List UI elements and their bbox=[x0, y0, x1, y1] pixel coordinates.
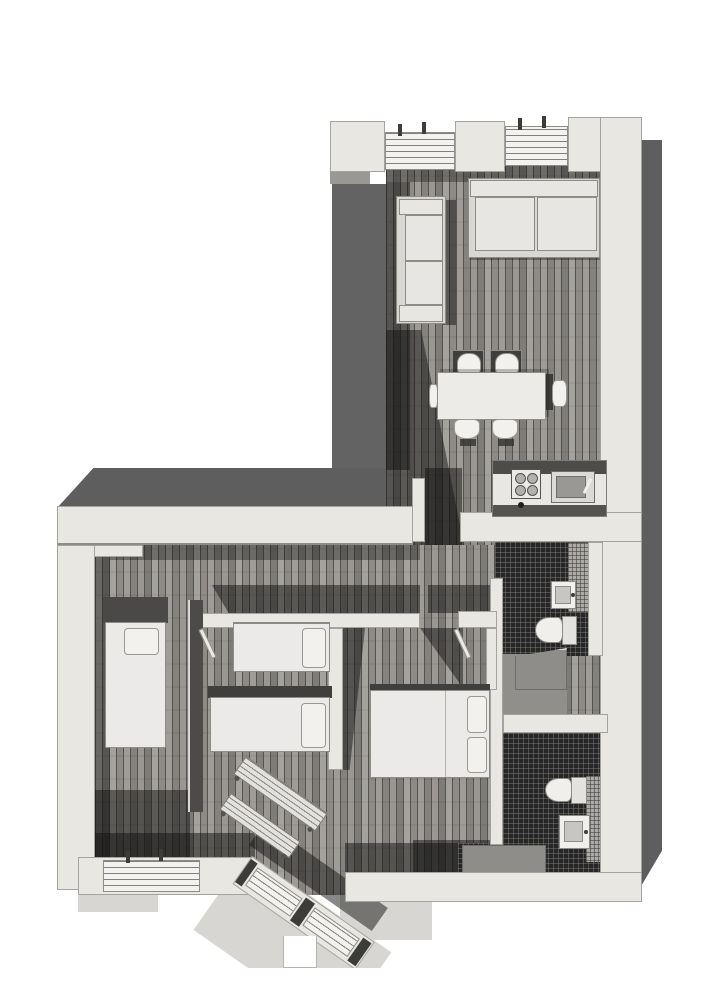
twin-bed-a bbox=[233, 622, 330, 672]
faucet-icon bbox=[584, 830, 588, 834]
basin-bowl bbox=[555, 586, 571, 604]
wall-bathroom-divider bbox=[503, 714, 608, 733]
chair-legs bbox=[460, 439, 476, 446]
bed-single bbox=[105, 622, 166, 748]
window-north-west bbox=[385, 132, 455, 170]
toilet-south bbox=[545, 777, 587, 804]
large-sofa bbox=[468, 178, 600, 258]
wall-divider-twin-master bbox=[328, 628, 343, 770]
burner-icon bbox=[527, 485, 538, 496]
window-handle-icon bbox=[542, 116, 546, 128]
wall-south-east bbox=[345, 872, 642, 902]
bed-pillow bbox=[467, 737, 487, 773]
wall-north-block-west bbox=[330, 121, 385, 172]
window-handle-icon bbox=[422, 122, 426, 134]
burner-icon bbox=[527, 473, 538, 484]
dining-chair-top bbox=[490, 350, 522, 374]
window-north-east bbox=[505, 126, 568, 166]
window-handle-icon bbox=[126, 851, 130, 863]
dining-chair-bottom-seat bbox=[454, 419, 480, 439]
page-margin-mask-bottom bbox=[0, 968, 707, 1000]
toilet-bowl bbox=[545, 778, 572, 802]
double-bed bbox=[370, 690, 490, 778]
dining-chair-bottom-seat bbox=[492, 419, 518, 439]
north-wall-side-face-lower-wing bbox=[57, 468, 388, 508]
wall-master-north bbox=[458, 611, 497, 628]
shadow-junction-doorway bbox=[425, 468, 462, 545]
dining-chair-top bbox=[452, 350, 484, 374]
wall-jamb-junction bbox=[412, 478, 425, 542]
bathroom-north-basin bbox=[551, 581, 576, 609]
wall-north-pier bbox=[455, 121, 505, 172]
toilet-north bbox=[535, 616, 577, 645]
dining-table bbox=[437, 372, 546, 420]
stove-knob bbox=[518, 502, 524, 508]
shadow-south-wall-inner-west bbox=[95, 833, 255, 860]
wall-bathroom-north-east bbox=[588, 542, 603, 656]
window-south-bedroom1 bbox=[103, 860, 200, 892]
bed-pillow bbox=[301, 703, 326, 748]
counter-front-edge bbox=[493, 505, 606, 516]
sofa-armrest bbox=[399, 199, 443, 215]
faucet-icon bbox=[571, 593, 575, 597]
kitchen-sink bbox=[551, 471, 595, 503]
shadow-master-wall bbox=[428, 585, 497, 613]
sofa-cushion bbox=[537, 197, 597, 251]
bathroom-south-basin bbox=[559, 815, 590, 849]
bed-pillow bbox=[124, 628, 159, 655]
shadow-twin-room-wall bbox=[212, 585, 420, 613]
stove bbox=[511, 469, 541, 499]
west-wall-side-face bbox=[332, 184, 386, 470]
sofa-back bbox=[470, 180, 598, 197]
window-handle-icon bbox=[518, 118, 522, 130]
burner-icon bbox=[515, 485, 526, 496]
bed-pillow bbox=[467, 696, 487, 733]
basin-bowl bbox=[564, 821, 583, 842]
terrace-step-notch bbox=[283, 936, 317, 968]
toilet-tank bbox=[562, 616, 577, 645]
window-handle-icon bbox=[398, 124, 402, 136]
duvet-seam bbox=[445, 691, 446, 777]
wall-master-northeast bbox=[486, 628, 497, 690]
kitchen-counter bbox=[492, 460, 607, 517]
wall-west-lower-wing bbox=[57, 545, 95, 890]
sofa-armrest bbox=[399, 305, 443, 322]
sink-basin bbox=[556, 476, 586, 498]
dining-chair-right-seat bbox=[552, 380, 567, 407]
sofa-cushion bbox=[475, 197, 535, 251]
sofa-cushion bbox=[405, 215, 443, 261]
twin-bed-b bbox=[210, 697, 330, 752]
east-wall-side-face bbox=[640, 140, 662, 888]
floor-plan-rendering bbox=[0, 0, 707, 1000]
toilet-bowl bbox=[535, 617, 563, 643]
sofa-cushion bbox=[405, 261, 443, 305]
toilet-tank bbox=[571, 777, 587, 804]
window-handle-icon bbox=[159, 849, 163, 861]
chair-legs bbox=[498, 439, 514, 446]
wall-north-block-west-ledge bbox=[330, 172, 370, 184]
wall-north-lower-wing bbox=[57, 506, 413, 545]
small-sofa bbox=[396, 196, 446, 324]
bed-single-headboard bbox=[103, 597, 168, 623]
burner-icon bbox=[515, 473, 526, 484]
shadow-corridor-north bbox=[95, 545, 420, 560]
bed-pillow bbox=[302, 628, 326, 668]
